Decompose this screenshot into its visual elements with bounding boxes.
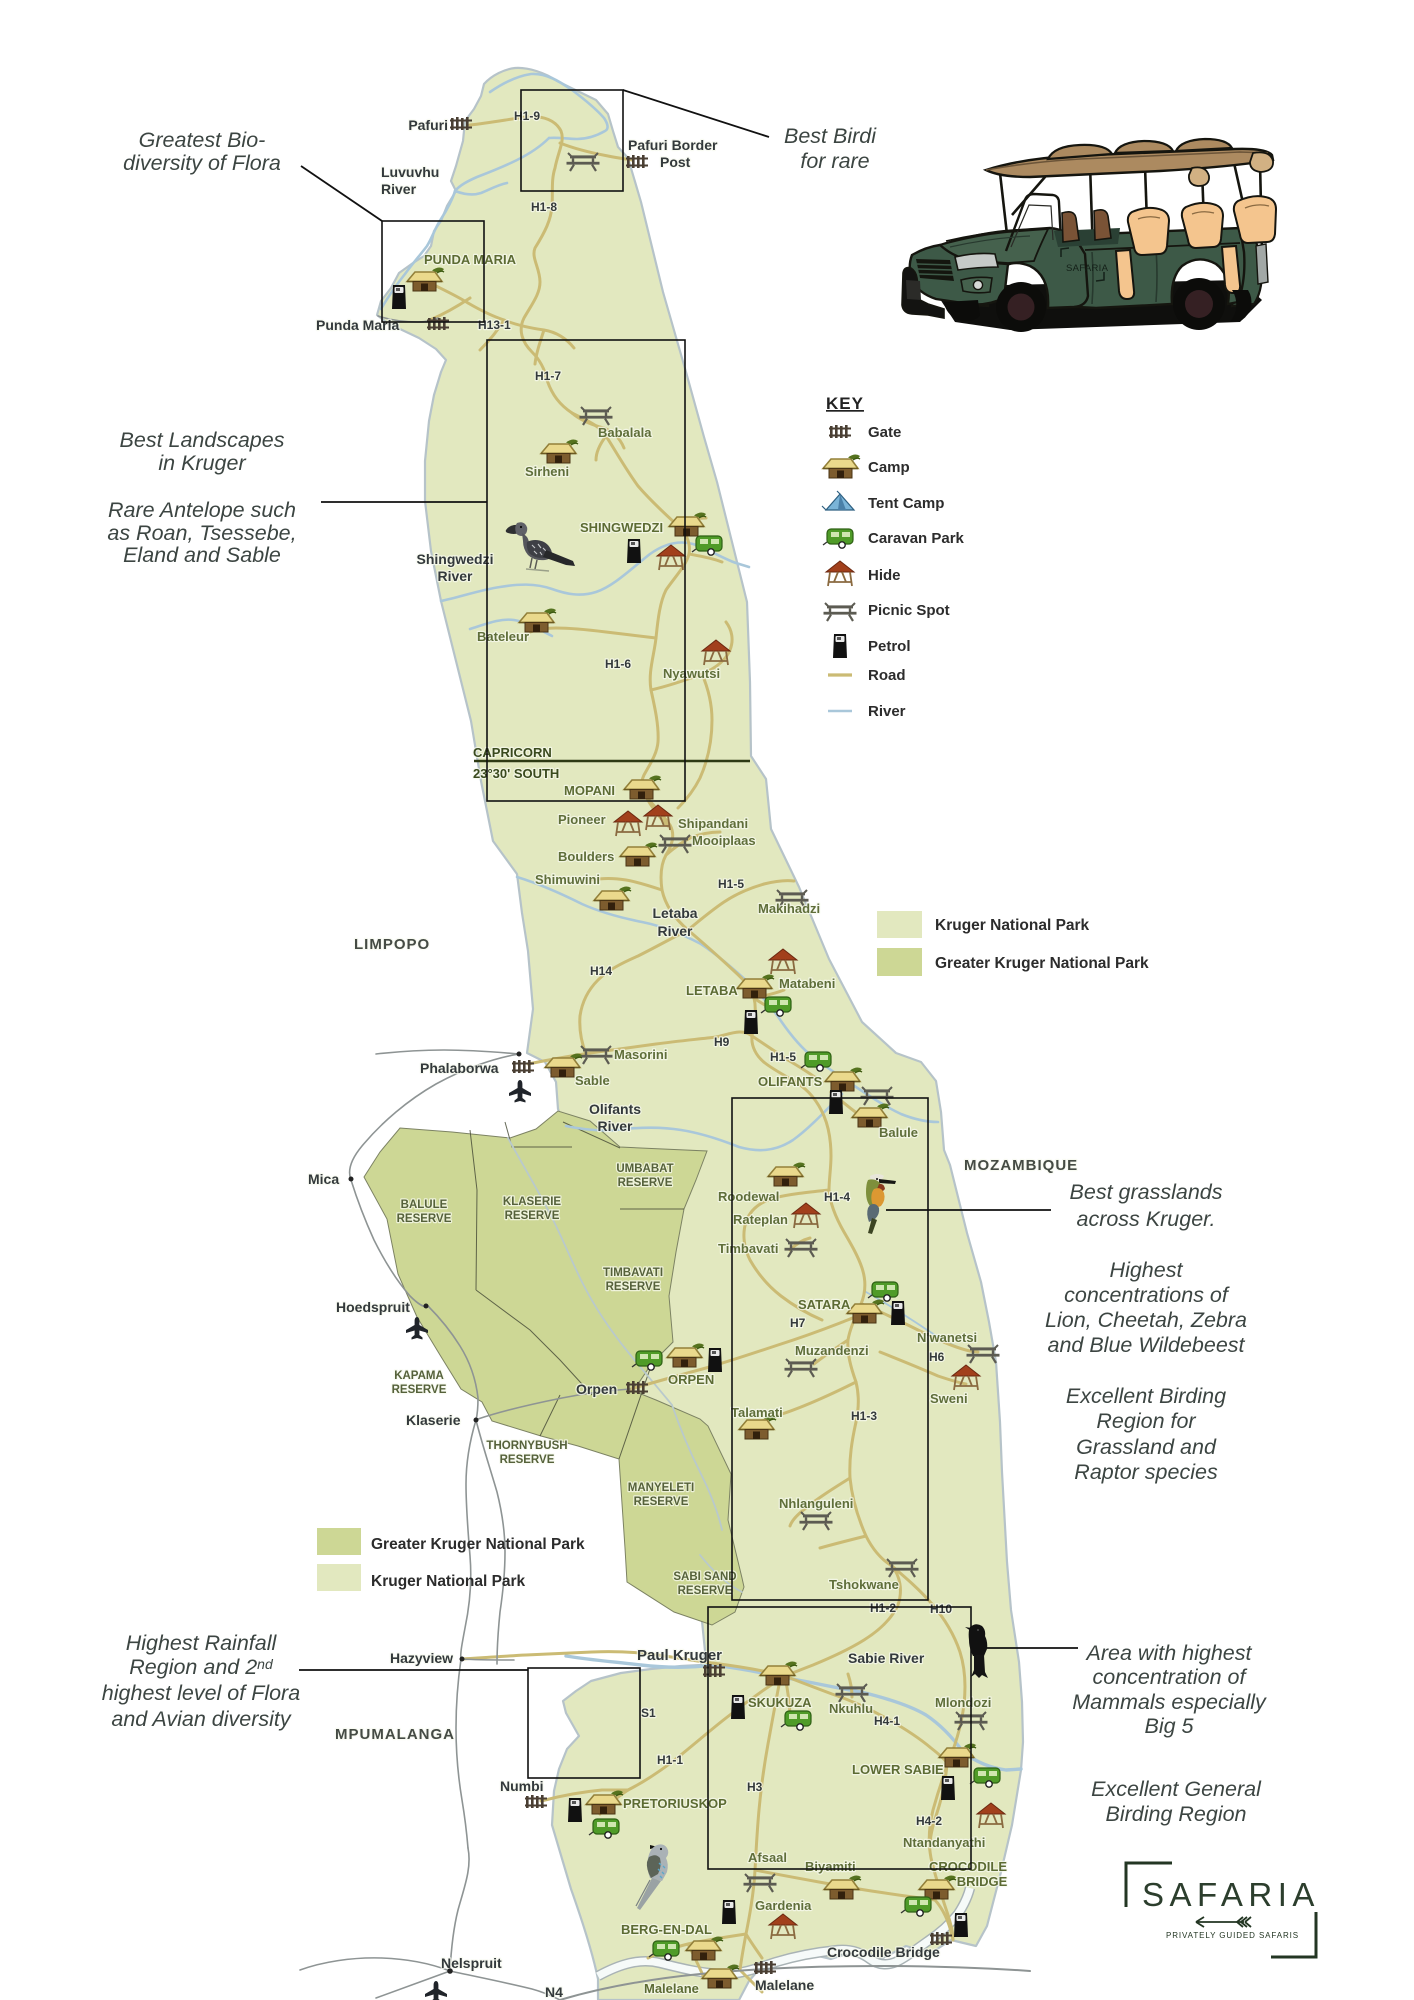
svg-text:Shingwedzi: Shingwedzi: [417, 551, 494, 567]
svg-text:RESERVE: RESERVE: [397, 1213, 452, 1225]
svg-text:H9: H9: [714, 1035, 730, 1049]
svg-text:H14: H14: [590, 964, 612, 978]
svg-text:Shipandani: Shipandani: [678, 816, 748, 831]
svg-text:Paul Kruger: Paul Kruger: [637, 1647, 722, 1664]
svg-text:Best Landscapes: Best Landscapes: [120, 428, 285, 452]
svg-text:Gardenia: Gardenia: [755, 1898, 812, 1913]
svg-text:Hide: Hide: [868, 567, 901, 584]
svg-text:Big 5: Big 5: [1144, 1714, 1194, 1738]
svg-text:Shimuwini: Shimuwini: [535, 872, 600, 887]
svg-text:Hoedspruit: Hoedspruit: [336, 1299, 410, 1315]
svg-text:Malelane: Malelane: [644, 1981, 699, 1996]
svg-text:H1-5: H1-5: [770, 1050, 796, 1064]
svg-text:TIMBAVATI: TIMBAVATI: [603, 1267, 663, 1279]
svg-text:Greater Kruger National Park: Greater Kruger National Park: [935, 955, 1149, 972]
svg-text:H1-2: H1-2: [870, 1601, 896, 1615]
svg-text:SKUKUZA: SKUKUZA: [748, 1695, 812, 1710]
svg-text:MOPANI: MOPANI: [564, 783, 615, 798]
svg-text:Best grasslands: Best grasslands: [1070, 1180, 1223, 1204]
svg-text:CROCODILE: CROCODILE: [929, 1859, 1007, 1874]
svg-text:Nkuhlu: Nkuhlu: [829, 1701, 873, 1716]
svg-text:Excellent Birding: Excellent Birding: [1066, 1384, 1226, 1408]
svg-text:H1-3: H1-3: [851, 1409, 877, 1423]
svg-text:Letaba: Letaba: [652, 905, 697, 921]
svg-text:H7: H7: [790, 1316, 806, 1330]
svg-text:Petrol: Petrol: [868, 638, 911, 655]
svg-text:H1-7: H1-7: [535, 369, 561, 383]
svg-text:Birding Region: Birding Region: [1105, 1802, 1246, 1826]
svg-text:S1: S1: [641, 1706, 656, 1720]
svg-text:Roodewal: Roodewal: [718, 1189, 779, 1204]
svg-text:Hazyview: Hazyview: [390, 1650, 453, 1666]
svg-text:BRIDGE: BRIDGE: [957, 1874, 1008, 1889]
svg-text:Pafuri Border: Pafuri Border: [628, 137, 718, 153]
svg-text:concentrations of: concentrations of: [1064, 1283, 1230, 1307]
svg-text:H13-1: H13-1: [478, 318, 511, 332]
svg-text:Highest: Highest: [1110, 1258, 1184, 1282]
svg-text:River: River: [868, 703, 906, 720]
svg-text:Klaserie: Klaserie: [406, 1412, 461, 1428]
svg-text:KEY: KEY: [826, 394, 864, 413]
svg-text:Phalaborwa: Phalaborwa: [420, 1060, 499, 1076]
svg-text:RESERVE: RESERVE: [634, 1496, 689, 1508]
svg-text:Luvuvhu: Luvuvhu: [381, 164, 439, 180]
svg-text:SAFARIA: SAFARIA: [1142, 1876, 1320, 1913]
svg-text:Mica: Mica: [308, 1171, 339, 1187]
svg-text:BALULE: BALULE: [401, 1199, 448, 1211]
svg-text:and Avian diversity: and Avian diversity: [111, 1707, 292, 1731]
svg-text:Balule: Balule: [879, 1125, 918, 1140]
svg-text:Malelane: Malelane: [755, 1977, 814, 1993]
svg-text:diversity of Flora: diversity of Flora: [123, 151, 281, 175]
svg-text:concentration of: concentration of: [1093, 1665, 1248, 1689]
svg-text:ORPEN: ORPEN: [668, 1372, 714, 1387]
svg-text:Caravan Park: Caravan Park: [868, 530, 965, 547]
svg-text:Kruger National Park: Kruger National Park: [371, 1573, 526, 1590]
svg-text:H1-5: H1-5: [718, 877, 744, 891]
svg-text:Nyawutsi: Nyawutsi: [663, 666, 720, 681]
svg-text:LIMPOPO: LIMPOPO: [354, 936, 430, 953]
svg-text:Post: Post: [660, 154, 691, 170]
svg-text:Makihadzi: Makihadzi: [758, 901, 820, 916]
svg-text:Talamati: Talamati: [731, 1405, 783, 1420]
svg-text:Region and 2nd: Region and 2nd: [129, 1655, 274, 1679]
svg-text:as Roan, Tsessebe,: as Roan, Tsessebe,: [107, 521, 296, 545]
svg-text:Ntandanyathi: Ntandanyathi: [903, 1835, 985, 1850]
svg-text:H3: H3: [747, 1780, 763, 1794]
svg-text:River: River: [657, 923, 693, 939]
svg-text:and Blue Wildebeest: and Blue Wildebeest: [1047, 1333, 1245, 1357]
svg-text:Lion, Cheetah, Zebra: Lion, Cheetah, Zebra: [1045, 1308, 1247, 1332]
svg-text:OLIFANTS: OLIFANTS: [758, 1074, 823, 1089]
svg-text:LOWER SABIE: LOWER SABIE: [852, 1762, 944, 1777]
svg-text:Gate: Gate: [868, 424, 901, 441]
svg-text:Bateleur: Bateleur: [477, 629, 529, 644]
svg-text:Babalala: Babalala: [598, 425, 652, 440]
svg-text:Tshokwane: Tshokwane: [829, 1577, 899, 1592]
svg-text:SABI SAND: SABI SAND: [673, 1571, 736, 1583]
svg-text:Matabeni: Matabeni: [779, 976, 835, 991]
svg-text:23°30' SOUTH: 23°30' SOUTH: [473, 766, 559, 781]
svg-text:RESERVE: RESERVE: [618, 1177, 673, 1189]
svg-text:H10: H10: [930, 1602, 952, 1616]
svg-text:in Kruger: in Kruger: [158, 451, 246, 475]
svg-text:River: River: [597, 1118, 633, 1134]
svg-text:RESERVE: RESERVE: [392, 1384, 447, 1396]
svg-text:RESERVE: RESERVE: [678, 1585, 733, 1597]
svg-text:BERG-EN-DAL: BERG-EN-DAL: [621, 1922, 712, 1937]
svg-text:RESERVE: RESERVE: [606, 1281, 661, 1293]
svg-text:N4: N4: [545, 1984, 563, 2000]
svg-text:SAFARIA: SAFARIA: [1066, 263, 1109, 274]
svg-text:Biyamiti: Biyamiti: [805, 1859, 856, 1874]
svg-text:Orpen: Orpen: [576, 1381, 617, 1397]
svg-text:Greatest Bio-: Greatest Bio-: [139, 128, 266, 152]
svg-text:N'wanetsi: N'wanetsi: [917, 1330, 977, 1345]
svg-text:Sable: Sable: [575, 1073, 610, 1088]
svg-text:Greater Kruger National Park: Greater Kruger National Park: [371, 1536, 585, 1553]
svg-text:PUNDA MARIA: PUNDA MARIA: [424, 252, 517, 267]
svg-text:Mammals especially: Mammals especially: [1072, 1690, 1267, 1714]
svg-text:KLASERIE: KLASERIE: [503, 1196, 561, 1208]
svg-text:Kruger National Park: Kruger National Park: [935, 917, 1090, 934]
svg-text:H1-4: H1-4: [824, 1190, 850, 1204]
svg-text:Sweni: Sweni: [930, 1391, 968, 1406]
svg-text:Tent Camp: Tent Camp: [868, 495, 944, 512]
svg-text:Grassland and: Grassland and: [1076, 1435, 1217, 1459]
svg-text:Camp: Camp: [868, 459, 910, 476]
svg-text:Eland and Sable: Eland and Sable: [123, 543, 281, 567]
svg-text:Excellent General: Excellent General: [1091, 1777, 1262, 1801]
svg-text:Rateplan: Rateplan: [733, 1212, 788, 1227]
svg-text:across Kruger.: across Kruger.: [1076, 1207, 1215, 1231]
svg-text:Area with highest: Area with highest: [1085, 1641, 1253, 1665]
svg-text:highest level of Flora: highest level of Flora: [102, 1681, 300, 1705]
svg-text:Rare Antelope such: Rare Antelope such: [108, 498, 296, 522]
svg-text:Mlondozi: Mlondozi: [935, 1695, 991, 1710]
svg-text:Picnic Spot: Picnic Spot: [868, 602, 950, 619]
svg-text:MANYELETI: MANYELETI: [628, 1482, 694, 1494]
svg-text:H4-1: H4-1: [874, 1714, 900, 1728]
svg-text:UMBABAT: UMBABAT: [616, 1163, 673, 1175]
svg-text:H1-8: H1-8: [531, 200, 557, 214]
svg-text:LETABA: LETABA: [686, 983, 738, 998]
svg-text:Punda Maria: Punda Maria: [316, 317, 399, 333]
svg-text:Boulders: Boulders: [558, 849, 614, 864]
svg-text:SATARA: SATARA: [798, 1297, 851, 1312]
svg-text:Highest Rainfall: Highest Rainfall: [126, 1631, 278, 1655]
svg-text:Raptor species: Raptor species: [1074, 1460, 1218, 1484]
svg-text:Mooiplaas: Mooiplaas: [692, 833, 756, 848]
svg-text:MPUMALANGA: MPUMALANGA: [335, 1726, 455, 1743]
svg-text:Sabie River: Sabie River: [848, 1650, 925, 1666]
svg-text:River: River: [437, 568, 473, 584]
svg-text:Numbi: Numbi: [500, 1778, 544, 1794]
svg-text:THORNYBUSH: THORNYBUSH: [486, 1440, 567, 1452]
svg-text:Road: Road: [868, 667, 906, 684]
svg-text:Masorini: Masorini: [614, 1047, 667, 1062]
svg-text:Sirheni: Sirheni: [525, 464, 569, 479]
svg-text:KAPAMA: KAPAMA: [394, 1370, 444, 1382]
svg-text:RESERVE: RESERVE: [505, 1210, 560, 1222]
svg-text:Pioneer: Pioneer: [558, 812, 606, 827]
svg-text:RESERVE: RESERVE: [500, 1454, 555, 1466]
svg-text:H1-9: H1-9: [514, 109, 540, 123]
svg-text:H6: H6: [929, 1350, 945, 1364]
svg-text:Crocodile Bridge: Crocodile Bridge: [827, 1944, 940, 1960]
svg-text:MOZAMBIQUE: MOZAMBIQUE: [964, 1157, 1078, 1174]
svg-text:H1-6: H1-6: [605, 657, 631, 671]
svg-text:H1-1: H1-1: [657, 1753, 683, 1767]
svg-text:H4-2: H4-2: [916, 1814, 942, 1828]
svg-text:PRETORIUSKOP: PRETORIUSKOP: [623, 1796, 727, 1811]
svg-text:Nhlanguleni: Nhlanguleni: [779, 1496, 853, 1511]
svg-text:for rare: for rare: [800, 149, 869, 173]
svg-text:SHINGWEDZI: SHINGWEDZI: [580, 520, 663, 535]
svg-text:Timbavati: Timbavati: [718, 1241, 778, 1256]
svg-text:Pafuri: Pafuri: [408, 117, 448, 133]
svg-text:Afsaal: Afsaal: [748, 1850, 787, 1865]
svg-text:CAPRICORN: CAPRICORN: [473, 745, 552, 760]
svg-text:Best Birdi: Best Birdi: [784, 124, 877, 148]
svg-text:River: River: [381, 181, 417, 197]
svg-text:Olifants: Olifants: [589, 1101, 641, 1117]
svg-text:Muzandenzi: Muzandenzi: [795, 1343, 869, 1358]
svg-text:Region for: Region for: [1096, 1409, 1196, 1433]
svg-text:PRIVATELY GUIDED SAFARIS: PRIVATELY GUIDED SAFARIS: [1166, 1931, 1299, 1940]
